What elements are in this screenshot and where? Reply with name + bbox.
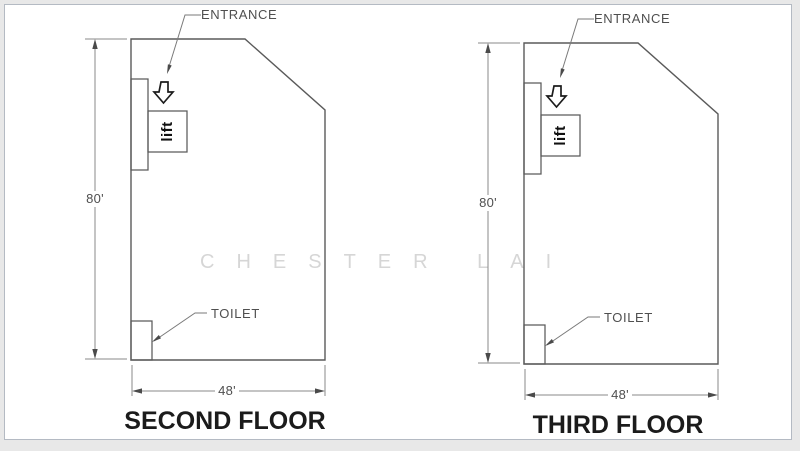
height-dimension-label: 80' xyxy=(77,192,113,205)
width-dimension-label: 48' xyxy=(209,384,245,397)
entrance-down-arrow-icon xyxy=(547,86,566,107)
width-dimension-label: 48' xyxy=(602,388,638,401)
height-dimension-label: 80' xyxy=(470,196,506,209)
lift-label: lift xyxy=(540,116,581,155)
entrance-leader-arrow xyxy=(167,15,201,74)
entrance-label: ENTRANCE xyxy=(594,12,670,25)
toilet-room xyxy=(524,325,545,364)
floor-plan-second: ENTRANCE TOILET 80' 48' lift SECOND FLOO… xyxy=(55,0,395,445)
toilet-leader-arrow xyxy=(152,313,207,342)
floor-plan-second-drawing xyxy=(55,0,395,445)
lift-lobby-room xyxy=(131,79,148,170)
entrance-down-arrow-icon xyxy=(154,82,173,103)
toilet-leader-arrow xyxy=(545,317,600,346)
entrance-leader-arrow xyxy=(560,19,594,78)
toilet-room xyxy=(131,321,152,360)
floor-title-second: SECOND FLOOR xyxy=(55,407,395,436)
entrance-label: ENTRANCE xyxy=(201,8,277,21)
floor-plan-third-drawing xyxy=(448,4,788,449)
lift-label: lift xyxy=(147,112,188,151)
toilet-label: TOILET xyxy=(604,311,653,324)
lift-lobby-room xyxy=(524,83,541,174)
floor-title-third: THIRD FLOOR xyxy=(448,411,788,440)
toilet-label: TOILET xyxy=(211,307,260,320)
floor-plan-third: ENTRANCE TOILET 80' 48' lift THIRD FLOOR xyxy=(448,4,788,449)
